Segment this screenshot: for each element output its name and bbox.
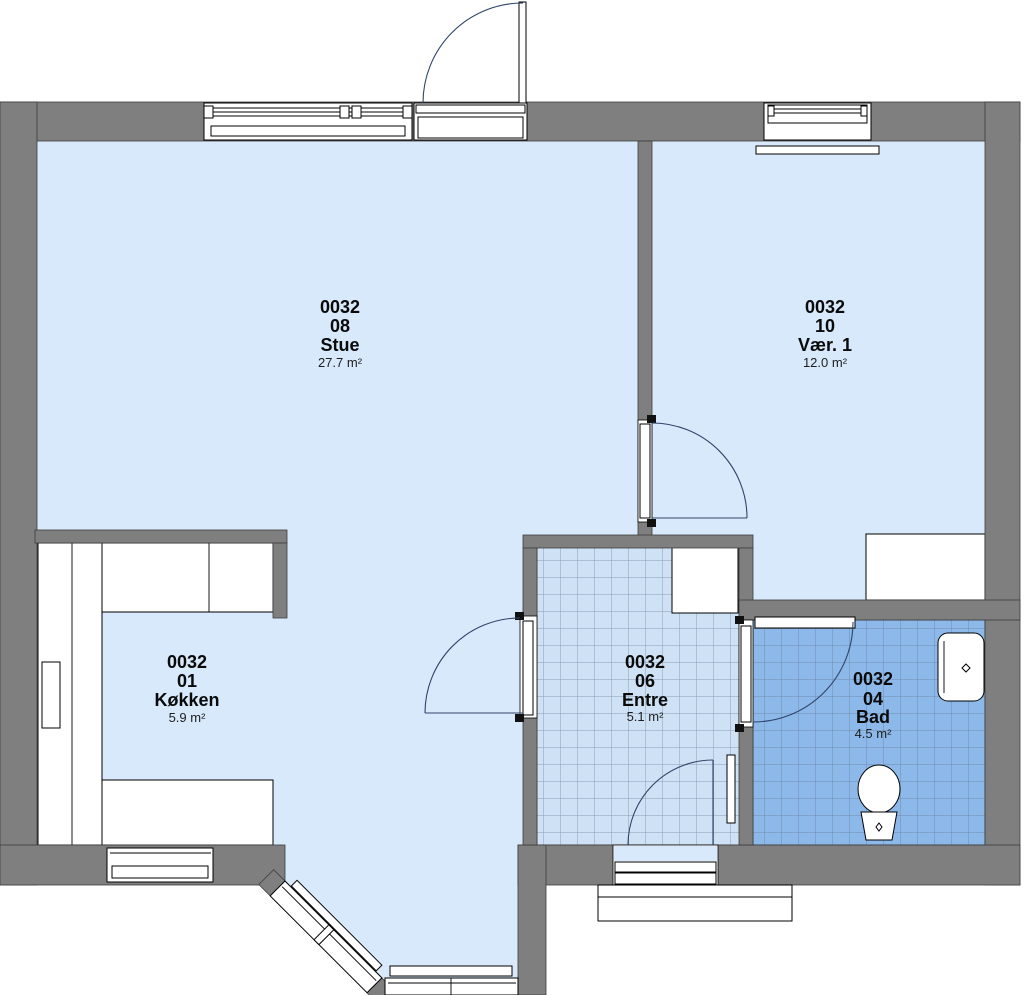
entry-door-bottom-threshold — [615, 862, 716, 872]
door-entre-bad-hinge — [735, 724, 744, 732]
room-bad-area: 4.5 m² — [855, 726, 893, 741]
room-bad-id: 0032 — [853, 669, 893, 689]
room-kokken-area: 5.9 m² — [169, 710, 207, 725]
kitchen-window — [107, 848, 213, 882]
wall-left — [0, 102, 37, 885]
window-room1-mullion — [768, 106, 774, 116]
floor-plan: 0032 08 Stue 27.7 m² 0032 10 Vær. 1 12.0… — [0, 0, 1024, 995]
room-entre-name: Entre — [622, 690, 668, 710]
window-kitchen-sill — [112, 866, 208, 878]
window-stue-mullion — [403, 106, 412, 118]
room-room1-number: 10 — [815, 316, 835, 336]
window-stue-mullion — [204, 106, 213, 118]
radiator-stue-bay — [390, 966, 512, 976]
door-stue-room1-hinge — [647, 519, 656, 527]
door-entre-bad-hinge — [735, 616, 744, 624]
room-kokken-name: Køkken — [154, 690, 219, 710]
kitchen-counter-bottom — [102, 780, 273, 845]
window-room1-mullion — [861, 106, 867, 116]
window-stue-sill — [211, 126, 405, 136]
wall-right — [985, 102, 1020, 885]
entry-door-bottom-floor — [614, 846, 717, 861]
door-stue-room1-hinge — [647, 415, 656, 423]
room-stue-number: 08 — [330, 316, 350, 336]
room-entre-number: 06 — [635, 671, 655, 691]
door-entre-bad-panel — [741, 626, 751, 722]
door-stue-entre-panel — [523, 621, 533, 715]
wall-bay-right — [518, 845, 546, 995]
window-stue-mullion — [352, 106, 361, 118]
room-bad-name: Bad — [856, 707, 890, 727]
washbasin — [938, 633, 984, 701]
wall-kitchen-right — [273, 543, 287, 618]
radiator-entre — [727, 755, 735, 823]
toilet-bowl — [858, 765, 900, 813]
wall-kitchen-top — [35, 530, 287, 543]
room-kokken-number: 01 — [177, 671, 197, 691]
entry-door-top-sill — [418, 117, 523, 138]
room-entre-id: 0032 — [625, 652, 665, 672]
door-stue-entre-hinge — [515, 714, 524, 722]
window-room1-frame — [768, 105, 867, 123]
room-stue-id: 0032 — [320, 297, 360, 317]
entry-door-top-leaf — [519, 2, 526, 103]
entre-cabinet — [672, 547, 738, 613]
room-bad-number: 04 — [863, 689, 883, 709]
room-stue-area: 27.7 m² — [318, 355, 363, 370]
entry-door-top-threshold — [416, 105, 525, 113]
door-stue-room1-panel — [640, 424, 650, 518]
entry-step — [598, 885, 792, 921]
wall-bottom-mid — [518, 845, 1020, 885]
room-kokken-id: 0032 — [167, 652, 207, 672]
room-room1-area: 12.0 m² — [803, 355, 848, 370]
door-stue-entre-hinge — [515, 612, 524, 620]
kitchen-sink — [42, 662, 60, 728]
kitchen-counter-top — [102, 543, 273, 612]
room-room1-name: Vær. 1 — [798, 335, 852, 355]
radiator-room1 — [756, 146, 879, 154]
floor-plan-drawing: 0032 08 Stue 27.7 m² 0032 10 Vær. 1 12.0… — [0, 0, 1024, 995]
door-entre-bad-leaf — [755, 617, 855, 628]
room1-cabinet — [866, 534, 985, 600]
room-entre-area: 5.1 m² — [627, 709, 665, 724]
window-bay-bottom — [385, 978, 518, 995]
room-room1-id: 0032 — [805, 297, 845, 317]
room-stue-name: Stue — [320, 335, 359, 355]
wall-entre-top — [523, 535, 753, 548]
window-stue-mullion — [340, 106, 349, 118]
entry-door-bottom-threshold — [615, 873, 716, 884]
